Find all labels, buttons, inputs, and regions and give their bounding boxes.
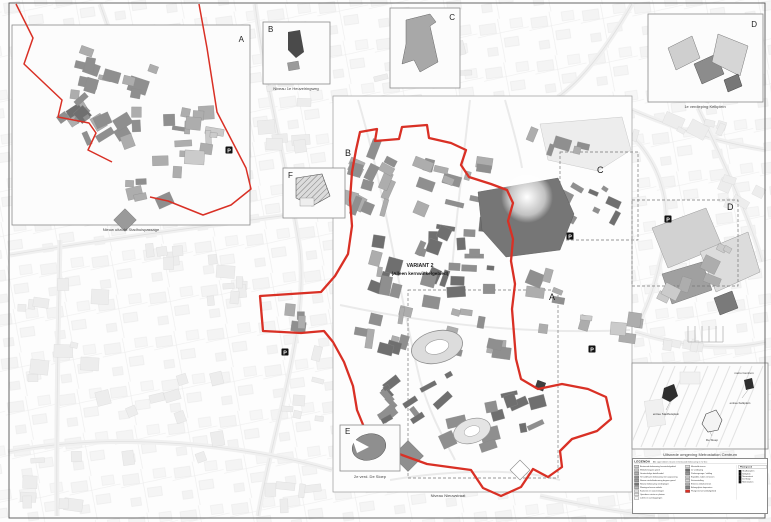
building: [487, 265, 495, 270]
region-letter-b: B: [345, 148, 351, 158]
building: [163, 257, 173, 270]
plan-sheet: A Nieuw uitzicht Stadhuispassage B Nivea…: [0, 0, 771, 522]
legend-columns: Bestaande bebouwing kernwinkelgebiedWink…: [634, 465, 766, 499]
building: [293, 139, 306, 153]
parking-icon: P: [589, 346, 596, 354]
legend-label: Winkels begane grond: [640, 469, 660, 471]
building: [125, 180, 133, 187]
legend-row: Plangrens kernwinkelgebied: [685, 489, 733, 492]
building: [152, 156, 168, 166]
building: [293, 395, 306, 406]
metro-label: entree Kelkplein: [730, 401, 751, 405]
building: [281, 406, 293, 412]
building: [265, 483, 276, 496]
inset-c-letter: C: [449, 13, 455, 22]
plattegrond-title: Plattegrond: [739, 465, 767, 469]
variant-title: VARIANT 2: [407, 263, 434, 269]
legend-panel: LEGENDA Alle oppervlakten nieuwe en best…: [632, 458, 768, 514]
building: [450, 276, 464, 286]
legend-label: Expeditie, laden en lossen: [691, 476, 714, 478]
inset-a-caption: Nieuw uitzicht Stadhuispassage: [103, 227, 160, 232]
main-map-caption: Niveau Nieuwstraat: [431, 493, 467, 498]
legend-square-swatch: [739, 480, 742, 483]
parking-icon: P: [226, 147, 233, 155]
legend-label: 1e verdieping: [691, 469, 703, 471]
building: [315, 416, 324, 422]
building: [573, 146, 581, 155]
parking-icon: P: [665, 216, 672, 224]
legend-swatch: [634, 496, 639, 499]
parking-icon: P: [567, 233, 574, 241]
legend-row: Luifels en overkappingen: [634, 496, 682, 499]
building: [80, 357, 99, 371]
building: [372, 235, 386, 249]
region-letter-a: A: [549, 292, 555, 302]
legend-column-left: Bestaande bebouwing kernwinkelgebiedWink…: [634, 465, 682, 499]
inset-e: E 2e verd. De Sloep: [340, 425, 400, 479]
metro-label: metro Centrum: [734, 371, 754, 375]
inset-e-caption: 2e verd. De Sloep: [354, 474, 387, 479]
building: [210, 430, 225, 446]
building: [207, 296, 215, 306]
inset-f-letter: F: [288, 171, 293, 180]
inset-b-building: [287, 61, 299, 71]
building: [131, 107, 141, 117]
parking-icon-letter: P: [227, 148, 231, 154]
inset-d-letter: D: [751, 20, 757, 29]
building: [298, 316, 306, 329]
building: [627, 312, 642, 328]
legend-label: Grootschalige detailhandel: [640, 472, 664, 474]
legend-content: LEGENDA Alle oppervlakten nieuwe en best…: [633, 459, 768, 514]
legend-column-right: Maaiveld niveau1e verdiepingParkeergarag…: [685, 465, 733, 499]
legend-label: Metrostation: [742, 481, 753, 483]
building: [461, 265, 476, 272]
building: [293, 410, 302, 419]
building: [136, 178, 147, 184]
inset-metro-caption: Uitsnede omgeving Metrostation Centrum: [663, 452, 737, 457]
inset-a: A Nieuw uitzicht Stadhuispassage: [12, 4, 251, 232]
building: [59, 498, 69, 509]
metro-block: [680, 372, 700, 384]
building: [525, 286, 544, 299]
legend-label: Parkeergarage / stalling: [691, 472, 712, 474]
parking-icon-letter: P: [666, 217, 670, 223]
building: [230, 291, 240, 304]
inset-d: D 1e verdieping Kelkplein: [648, 14, 763, 109]
legend-label: Bestaande bebouwing kernwinkelgebied: [640, 465, 676, 467]
building: [483, 284, 495, 294]
building: [210, 132, 218, 137]
legend-label: Entrees winkelcentrum: [691, 483, 711, 485]
legend-label: Maaiveld niveau: [691, 465, 705, 467]
building: [447, 286, 466, 298]
inset-f-building: [300, 198, 314, 206]
legend-label: Plangrens kernwinkelgebied: [691, 490, 716, 492]
legend-label: Nieuwe bebouwing verdiepingen: [640, 483, 669, 485]
building: [280, 499, 288, 513]
inset-b-caption: Niveau 1e Heuvelringweg: [273, 86, 319, 91]
inset-d-caption: 1e verdieping Kelkplein: [684, 104, 725, 109]
inset-e-letter: E: [345, 427, 350, 436]
inset-b: B Niveau 1e Heuvelringweg: [263, 22, 330, 91]
building: [174, 140, 191, 147]
building: [469, 249, 479, 257]
building: [236, 276, 243, 288]
building: [538, 324, 548, 334]
legend-label: Belangrijkste looproutes: [691, 486, 712, 488]
legend-label: Te handhaven bebouwing met aanpassing: [640, 476, 677, 478]
building: [284, 303, 295, 316]
building: [91, 289, 109, 305]
inset-c: C: [390, 8, 460, 88]
building: [449, 263, 461, 271]
inset-f: F: [283, 168, 345, 218]
building: [457, 238, 466, 251]
legend-label: Luifels en overkappingen: [640, 497, 662, 499]
legend-column-plattegrond: Plattegrond StadhuispleinKelkpleinNieuws…: [736, 465, 766, 499]
building: [122, 450, 135, 466]
building: [130, 88, 141, 99]
building: [23, 476, 38, 489]
building: [23, 496, 32, 508]
legend-note: Alle oppervlakten nieuwe en bestaande be…: [653, 461, 707, 463]
plattegrond-rows: StadhuispleinKelkpleinNieuwstraatDe Sloe…: [739, 470, 767, 483]
building: [297, 98, 311, 106]
building: [71, 451, 82, 462]
map-canvas: A Nieuw uitzicht Stadhuispassage B Nivea…: [0, 0, 771, 522]
legend-row: Metrostation: [739, 480, 767, 483]
building: [485, 401, 498, 413]
building: [57, 278, 69, 291]
building: [18, 304, 27, 311]
building: [184, 150, 205, 165]
building: [663, 340, 673, 351]
legend-label: Openbare ruimte en pleinen: [640, 493, 665, 495]
parking-icon-letter: P: [283, 350, 287, 356]
legend-label: Fietsenstalling: [691, 479, 704, 481]
building: [257, 120, 275, 135]
legend-label: Nieuwe winkelbebouwing begane grond: [640, 479, 675, 481]
parking-icon-letter: P: [568, 234, 572, 240]
legend-label: Woningen boven winkels: [640, 486, 662, 488]
building: [33, 297, 50, 308]
parking-icon-letter: P: [590, 347, 594, 353]
building: [266, 138, 283, 150]
building: [145, 243, 154, 257]
building: [185, 116, 201, 130]
legend-label: Kantoren en voorzieningen: [640, 490, 664, 492]
building: [610, 322, 627, 336]
building: [223, 283, 235, 289]
legend-title: LEGENDA: [634, 460, 650, 463]
building: [580, 315, 592, 321]
building: [132, 120, 141, 132]
building: [156, 246, 167, 256]
region-letter-d: D: [727, 202, 734, 212]
inset-b-letter: B: [268, 25, 273, 34]
variant-subtitle: (Alleen kernwinkelgebied): [392, 271, 449, 276]
metro-label: entree Stadhuisplein: [653, 412, 680, 416]
metro-label: De Sloep: [706, 438, 718, 442]
building: [464, 229, 476, 237]
building: [29, 359, 49, 375]
building: [216, 265, 235, 279]
building: [208, 254, 217, 264]
inset-metro: entree Stadhuisplein metro Centrum De Sl…: [630, 363, 768, 457]
region-letter-c: C: [597, 165, 604, 175]
building: [163, 114, 175, 126]
building: [28, 374, 38, 382]
parking-icon: P: [282, 349, 289, 357]
building: [181, 107, 191, 117]
inset-a-letter: A: [239, 35, 245, 44]
building: [31, 458, 45, 464]
inset-d-frame: [648, 14, 763, 102]
building: [172, 245, 183, 256]
legend-swatch: [685, 489, 690, 492]
building: [519, 423, 527, 433]
building: [173, 166, 182, 178]
legend-header: LEGENDA Alle oppervlakten nieuwe en best…: [634, 460, 766, 464]
